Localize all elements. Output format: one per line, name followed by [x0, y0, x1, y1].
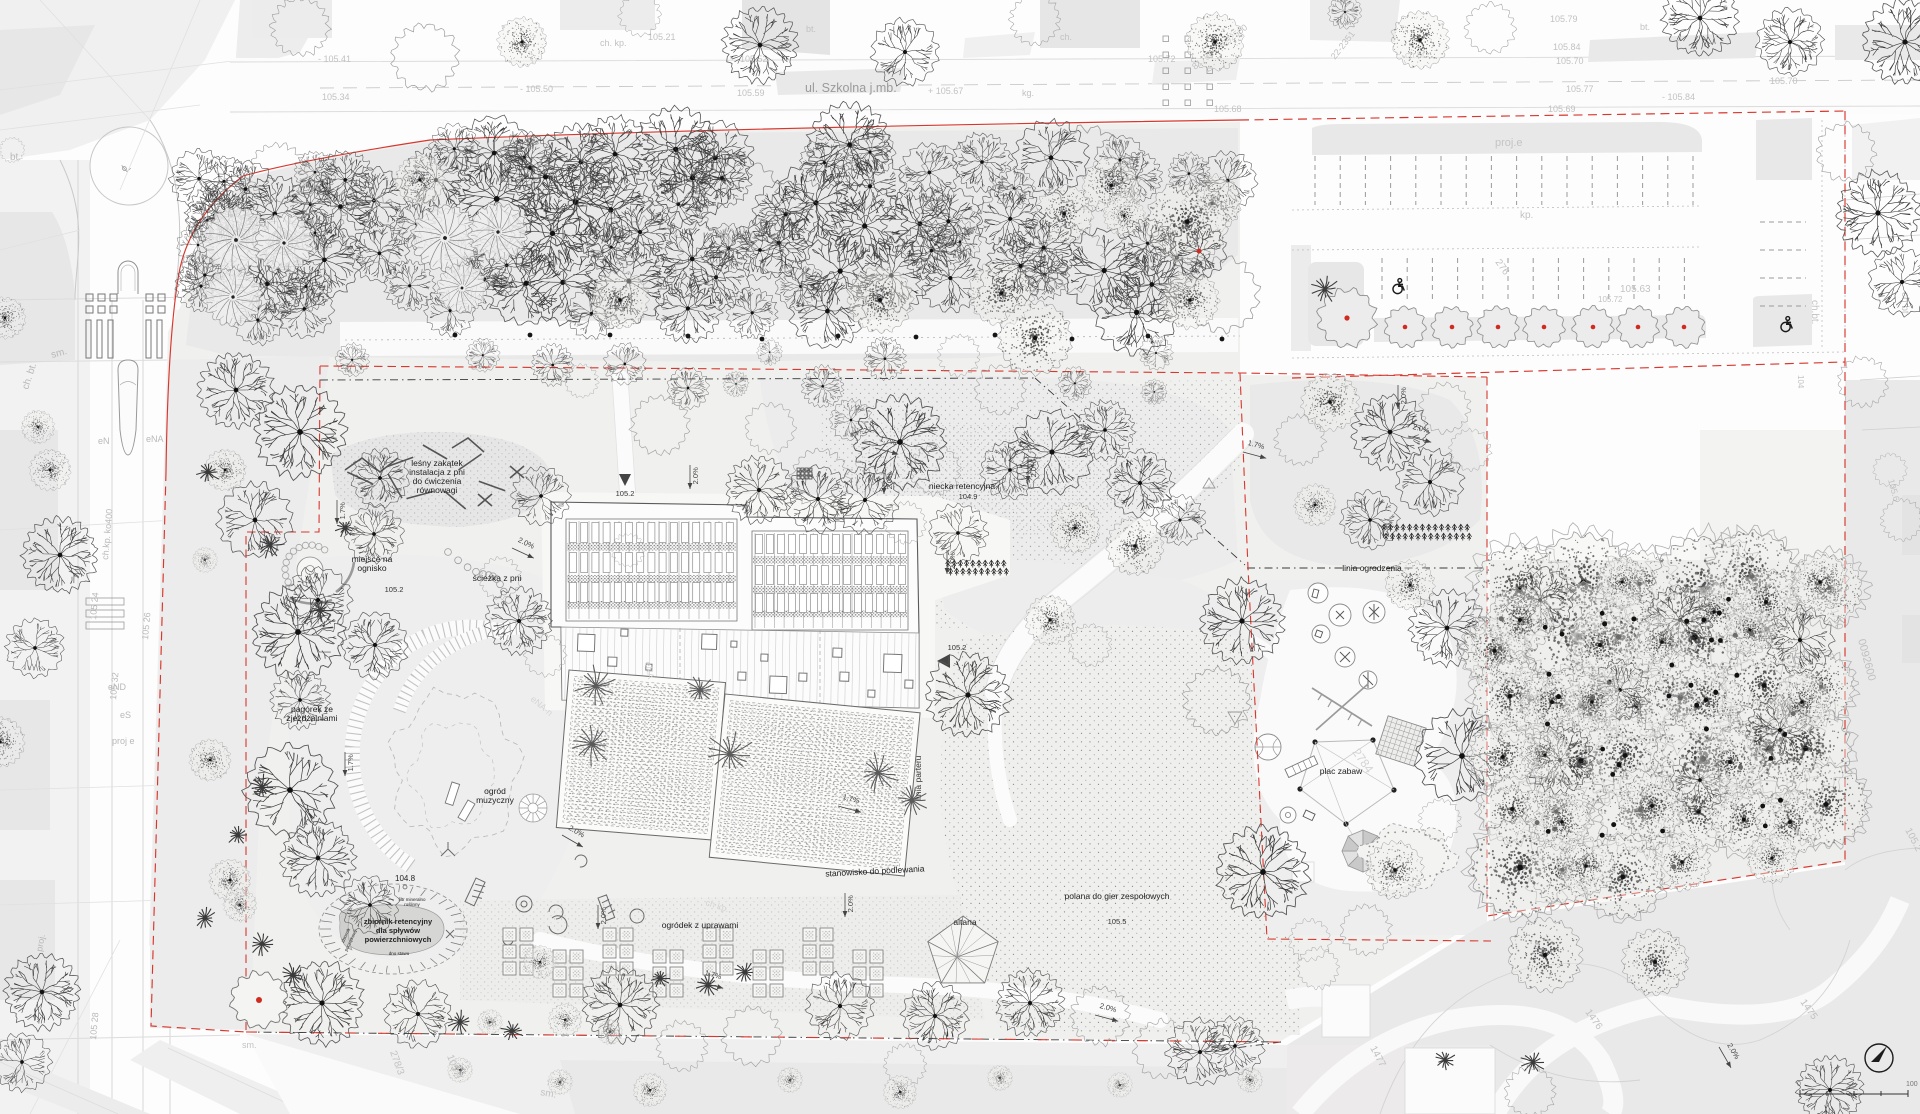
svg-text:105.5: 105.5	[1108, 917, 1127, 926]
svg-text:105.77: 105.77	[1566, 84, 1594, 94]
svg-text:muzyczny: muzyczny	[476, 795, 515, 805]
svg-text:proj e: proj e	[112, 736, 135, 746]
svg-text:bt.: bt.	[806, 24, 816, 34]
svg-text:104: 104	[1796, 375, 1805, 389]
svg-text:ch.bt.: ch.bt.	[1809, 300, 1820, 324]
svg-text:2.0%: 2.0%	[1399, 387, 1408, 404]
svg-text:- 105.50: - 105.50	[520, 84, 553, 94]
svg-text:2.0%: 2.0%	[885, 472, 894, 489]
svg-text:105.79: 105.79	[1550, 14, 1578, 24]
svg-text:105.72: 105.72	[1148, 54, 1176, 64]
svg-text:+ 105.67: + 105.67	[928, 86, 963, 96]
svg-text:105.84: 105.84	[1553, 42, 1581, 52]
svg-text:105.2: 105.2	[616, 489, 635, 498]
svg-text:ch.: ch.	[1060, 32, 1072, 42]
svg-text:plac zabaw: plac zabaw	[1320, 766, 1363, 776]
svg-text:1.7%: 1.7%	[346, 754, 355, 771]
svg-text:105.2: 105.2	[385, 585, 404, 594]
svg-text:1.7%: 1.7%	[338, 502, 347, 519]
svg-text:105.59: 105.59	[737, 88, 765, 98]
svg-text:proj.e: proj.e	[1495, 137, 1523, 149]
svg-text:104.8: 104.8	[395, 874, 416, 883]
svg-text:104.9: 104.9	[959, 492, 978, 501]
svg-text:2.0%: 2.0%	[1029, 460, 1038, 477]
svg-text:2.0%: 2.0%	[948, 552, 957, 569]
svg-text:2.0%: 2.0%	[846, 895, 855, 912]
svg-text:kg.: kg.	[1022, 88, 1034, 98]
svg-text:równowagi: równowagi	[417, 485, 458, 495]
svg-text:105.70: 105.70	[1770, 76, 1798, 86]
svg-text:105.68: 105.68	[1214, 104, 1242, 114]
svg-text:eN: eN	[98, 436, 110, 446]
svg-text:dla spływów: dla spływów	[376, 926, 420, 935]
svg-text:105.69: 105.69	[1548, 104, 1576, 114]
svg-text:polana do gier zespołowych: polana do gier zespołowych	[1065, 891, 1170, 901]
svg-text:eNA: eNA	[146, 434, 164, 444]
svg-text:105.72: 105.72	[1598, 295, 1623, 304]
svg-text:niecka retencyjna: niecka retencyjna	[929, 481, 995, 491]
svg-text:eS: eS	[120, 710, 131, 720]
svg-text:bt.: bt.	[1640, 22, 1650, 32]
svg-text:roślinny: roślinny	[404, 902, 420, 907]
svg-text:sm.: sm.	[242, 1040, 257, 1050]
svg-text:2.0%: 2.0%	[599, 907, 608, 924]
svg-text:ch. kp.: ch. kp.	[600, 38, 627, 48]
svg-text:105.34: 105.34	[322, 92, 350, 102]
svg-text:powierzchniowych: powierzchniowych	[365, 935, 432, 944]
svg-text:105.21: 105.21	[648, 32, 676, 42]
svg-text:dno stawu: dno stawu	[389, 951, 410, 956]
svg-text:- 105.84: - 105.84	[1662, 92, 1695, 102]
svg-text:eND: eND	[108, 682, 127, 692]
svg-text:altana: altana	[953, 917, 976, 927]
svg-text:linia parteru: linia parteru	[913, 755, 923, 800]
svg-text:2.0%: 2.0%	[691, 467, 700, 484]
svg-text:kp.: kp.	[1520, 210, 1533, 221]
svg-text:ul. Szkolna j.mb.: ul. Szkolna j.mb.	[805, 81, 897, 95]
svg-text:ogródek z uprawami: ogródek z uprawami	[662, 920, 739, 930]
svg-text:ch bt.: ch bt.	[1899, 292, 1910, 316]
svg-text:linia ogrodzenia: linia ogrodzenia	[1342, 563, 1402, 573]
svg-text:100: 100	[1906, 1081, 1918, 1088]
svg-text:ścieżka z pni: ścieżka z pni	[473, 573, 522, 583]
svg-text:zjeżdżalniami: zjeżdżalniami	[286, 713, 337, 723]
svg-text:105.70: 105.70	[1556, 56, 1584, 66]
svg-text:ognisko: ognisko	[357, 563, 387, 573]
svg-text:105.2: 105.2	[948, 643, 967, 652]
svg-text:105.63: 105.63	[1620, 284, 1651, 295]
svg-text:- 105.41: - 105.41	[318, 54, 351, 64]
